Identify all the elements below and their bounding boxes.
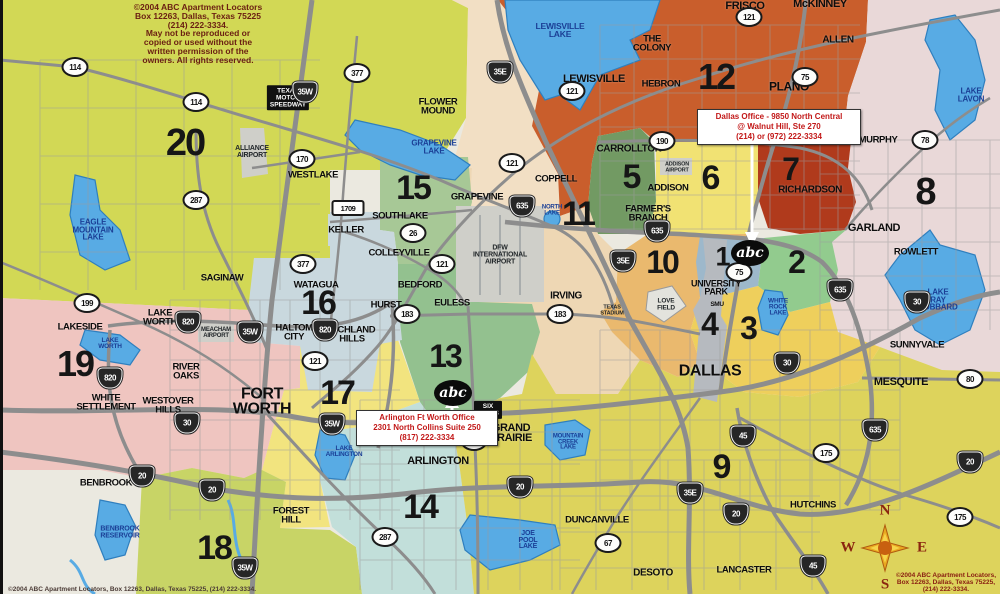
lake-label-lake-lavon: LAKE LAVON [958,87,984,102]
highway-shield-635-35: 635 [863,420,888,441]
compass-south-label: S [881,577,889,594]
highway-shield-121-7: 121 [736,7,763,27]
zone-label-9: 9 [713,450,730,484]
city-label-watagua: WATAGUA [294,282,339,291]
airport-label-meacham-airport: MEACHAM AIRPORT [201,327,231,339]
highway-shield-35E-4: 35E [488,62,513,83]
zone-label-17: 17 [320,376,354,410]
highway-shield-121-5: 121 [559,81,586,101]
compass-north-label: N [880,503,891,520]
city-label-dallas: DALLAS [679,365,741,380]
highway-shield-820-31: 820 [98,368,123,389]
highway-shield-20-44: 20 [724,504,749,525]
city-label-bedford: BEDFORD [398,282,442,291]
abc-marker-arlington: abc [434,380,472,406]
city-label-lake-worth: LAKE WORTH [143,309,177,326]
city-label-colleyville: COLLEYVILLE [368,250,429,259]
highway-shield-30-22: 30 [905,292,930,313]
zone-label-16: 16 [301,286,335,320]
city-label-westlake: WESTLAKE [288,172,338,181]
city-label-desoto: DESOTO [633,568,673,577]
city-label-hebron: HEBRON [642,81,681,90]
city-label-lancaster: LANCASTER [717,567,772,576]
highway-shield-121-18: 121 [429,254,456,274]
airport-label-dfw-international-airport: DFW INTERNATIONAL AIRPORT [473,244,527,265]
city-label-irving: IRVING [550,291,582,300]
city-label-grapevine: GRAPEVINE [451,194,503,203]
compass-rose: N S E W [840,503,930,593]
city-label-river-oaks: RIVER OAKS [172,363,199,380]
highway-shield-114-0: 114 [62,57,89,77]
city-label-richardson: RICHARDSON [778,185,842,194]
highway-shield-35E-43: 35E [678,483,703,504]
highway-shield-20-40: 20 [130,466,155,487]
highway-shield-30-30: 30 [775,353,800,374]
highway-shield-377-19: 377 [290,254,317,274]
zone-label-10: 10 [646,246,678,278]
zone-label-11: 11 [562,197,594,231]
highway-shield-287-46: 287 [372,527,399,547]
highway-shield-1709-13: 1709 [332,200,365,216]
arlington-office-box: Arlington Ft Worth Office 2301 North Col… [356,410,498,446]
zone-label-18: 18 [197,531,231,565]
zone-label-2: 2 [788,246,804,278]
highway-shield-121-9: 121 [499,153,526,173]
compass-west-label: W [841,540,856,557]
highway-shield-20-39: 20 [958,452,983,473]
city-label-haltom-city: HALTOM CITY [275,324,312,341]
copyright-bottom-left: ©2004 ABC Apartment Locators, Box 12263,… [8,586,256,593]
highway-shield-121-29: 121 [302,351,329,371]
highway-shield-35W-34: 35W [320,414,345,435]
city-label-murphy: MURPHY [859,137,898,146]
compass-east-label: E [917,540,927,557]
zone-label-3: 3 [740,312,756,344]
abc-marker-dallas: abc [731,240,769,266]
city-label-addison: ADDISON [647,185,688,194]
zone-label-6: 6 [702,161,719,195]
highway-shield-78-11: 78 [912,130,939,150]
highway-shield-30-33: 30 [175,413,200,434]
zone-label-14: 14 [403,490,437,524]
city-label-mesquite: MESQUITE [874,377,928,387]
highway-shield-35W-3: 35W [293,82,318,103]
lake-label-eagle-mountain-lake: EAGLE MOUNTAIN LAKE [73,219,114,242]
highway-shield-199-23: 199 [74,293,101,313]
highway-shield-287-12: 287 [183,190,210,210]
airport-label-love-field: LOVE FIELD [657,298,675,311]
highway-shield-35W-49: 35W [233,558,258,579]
lake-label-benbrook-reservoir: BENBROOK RESERVOIR [100,526,139,539]
copyright-top: ©2004 ABC Apartment Locators Box 12263, … [128,3,268,64]
highway-shield-67-47: 67 [595,533,622,553]
city-label-rowlett: ROWLETT [894,249,938,258]
zone-label-7: 7 [782,153,798,185]
city-label-lakeside: LAKESIDE [58,324,103,333]
city-label-smu: SMU [710,302,723,308]
highway-shield-20-41: 20 [508,477,533,498]
city-label-benbrook: BENBROOK [80,480,132,489]
airport-label-alliance-airport: ALLIANCE AIRPORT [235,145,269,159]
city-label-arlington: ARLINGTON [407,456,469,466]
highway-shield-35E-17: 35E [611,251,636,272]
highway-shield-175-45: 175 [947,507,974,527]
compass-center [878,541,892,555]
dfw-apartment-locator-zone-map: FRISCOMcKINNEYALLENTHE COLONYLEWISVILLEH… [0,0,1000,594]
city-label-mckinney: McKINNEY [793,0,847,9]
highway-shield-635-14: 635 [510,196,535,217]
city-label-hutchins: HUTCHINS [790,502,836,511]
lake-label-mountain-creek-lake: MOUNTAIN CREEK LAKE [553,434,583,451]
highway-shield-45-36: 45 [731,426,756,447]
lake-label-lewisville-lake: LEWISVILLE LAKE [535,22,584,38]
city-label-duncanville: DUNCANVILLE [565,517,629,526]
lake-label-joe-pool-lake: JOE POOL LAKE [518,531,537,551]
lake-label-grapevine-lake: GRAPEVINE LAKE [411,139,456,154]
airport-label-addison-airport: ADDISON AIRPORT [665,162,689,173]
zone-label-8: 8 [915,173,934,211]
city-label-coppell: COPPELL [535,176,577,185]
city-label-allen: ALLEN [822,35,853,44]
zone-label-13: 13 [429,340,461,372]
highway-shield-80-32: 80 [957,369,984,389]
highway-shield-820-27: 820 [313,320,338,341]
highway-shield-170-8: 170 [289,149,316,169]
city-label-sunnyvale: SUNNYVALE [890,342,944,351]
highway-shield-114-1: 114 [183,92,210,112]
city-label-fort-worth: FORT WORTH [233,387,291,416]
highway-shield-635-15: 635 [645,221,670,242]
highway-shield-20-42: 20 [200,480,225,501]
city-label-saginaw: SAGINAW [201,275,244,284]
highway-shield-175-38: 175 [813,443,840,463]
zone-label-15: 15 [396,171,430,205]
city-label-southlake: SOUTHLAKE [372,213,428,222]
zone-label-20: 20 [166,124,204,162]
city-label-flower-mound: FLOWER MOUND [419,98,458,115]
city-label-garland: GARLAND [848,223,900,233]
lake-label-north-lake: NORTH LAKE [542,205,562,216]
highway-shield-635-21: 635 [828,280,853,301]
highway-shield-183-24: 183 [394,304,421,324]
city-label-white-settlement: WHITE SETTLEMENT [76,394,135,411]
city-label-the-colony: THE COLONY [633,35,671,52]
zone-label-19: 19 [57,346,93,382]
dallas-office-box: Dallas Office - 9850 North Central @ Wal… [697,109,861,145]
lake-label-lake-worth: LAKE WORTH [98,338,122,350]
highway-shield-45-48: 45 [801,556,826,577]
zone-label-4: 4 [701,308,717,340]
lake-label-lake-arlington: LAKE ARLINGTON [326,446,363,458]
zone-label-5: 5 [623,160,640,194]
city-label-university-park: UNIVERSITY PARK [691,280,741,297]
city-label-forest-hill: FOREST HILL [273,507,309,524]
highway-shield-26-16: 26 [400,223,427,243]
zone-label-12: 12 [698,59,734,95]
highway-shield-820-26: 820 [176,312,201,333]
highway-shield-190-10: 190 [649,131,676,151]
lake-label-white-rock-lake: WHITE ROCK LAKE [768,299,788,318]
highway-shield-377-2: 377 [344,63,371,83]
highway-shield-75-6: 75 [792,67,819,87]
highway-shield-183-25: 183 [547,304,574,324]
city-label-euless: EULESS [434,300,470,309]
city-label-keller: KELLER [328,227,364,236]
airport-label-texas-stadium: TEXAS STADIUM [600,305,623,316]
highway-shield-35W-28: 35W [238,322,263,343]
